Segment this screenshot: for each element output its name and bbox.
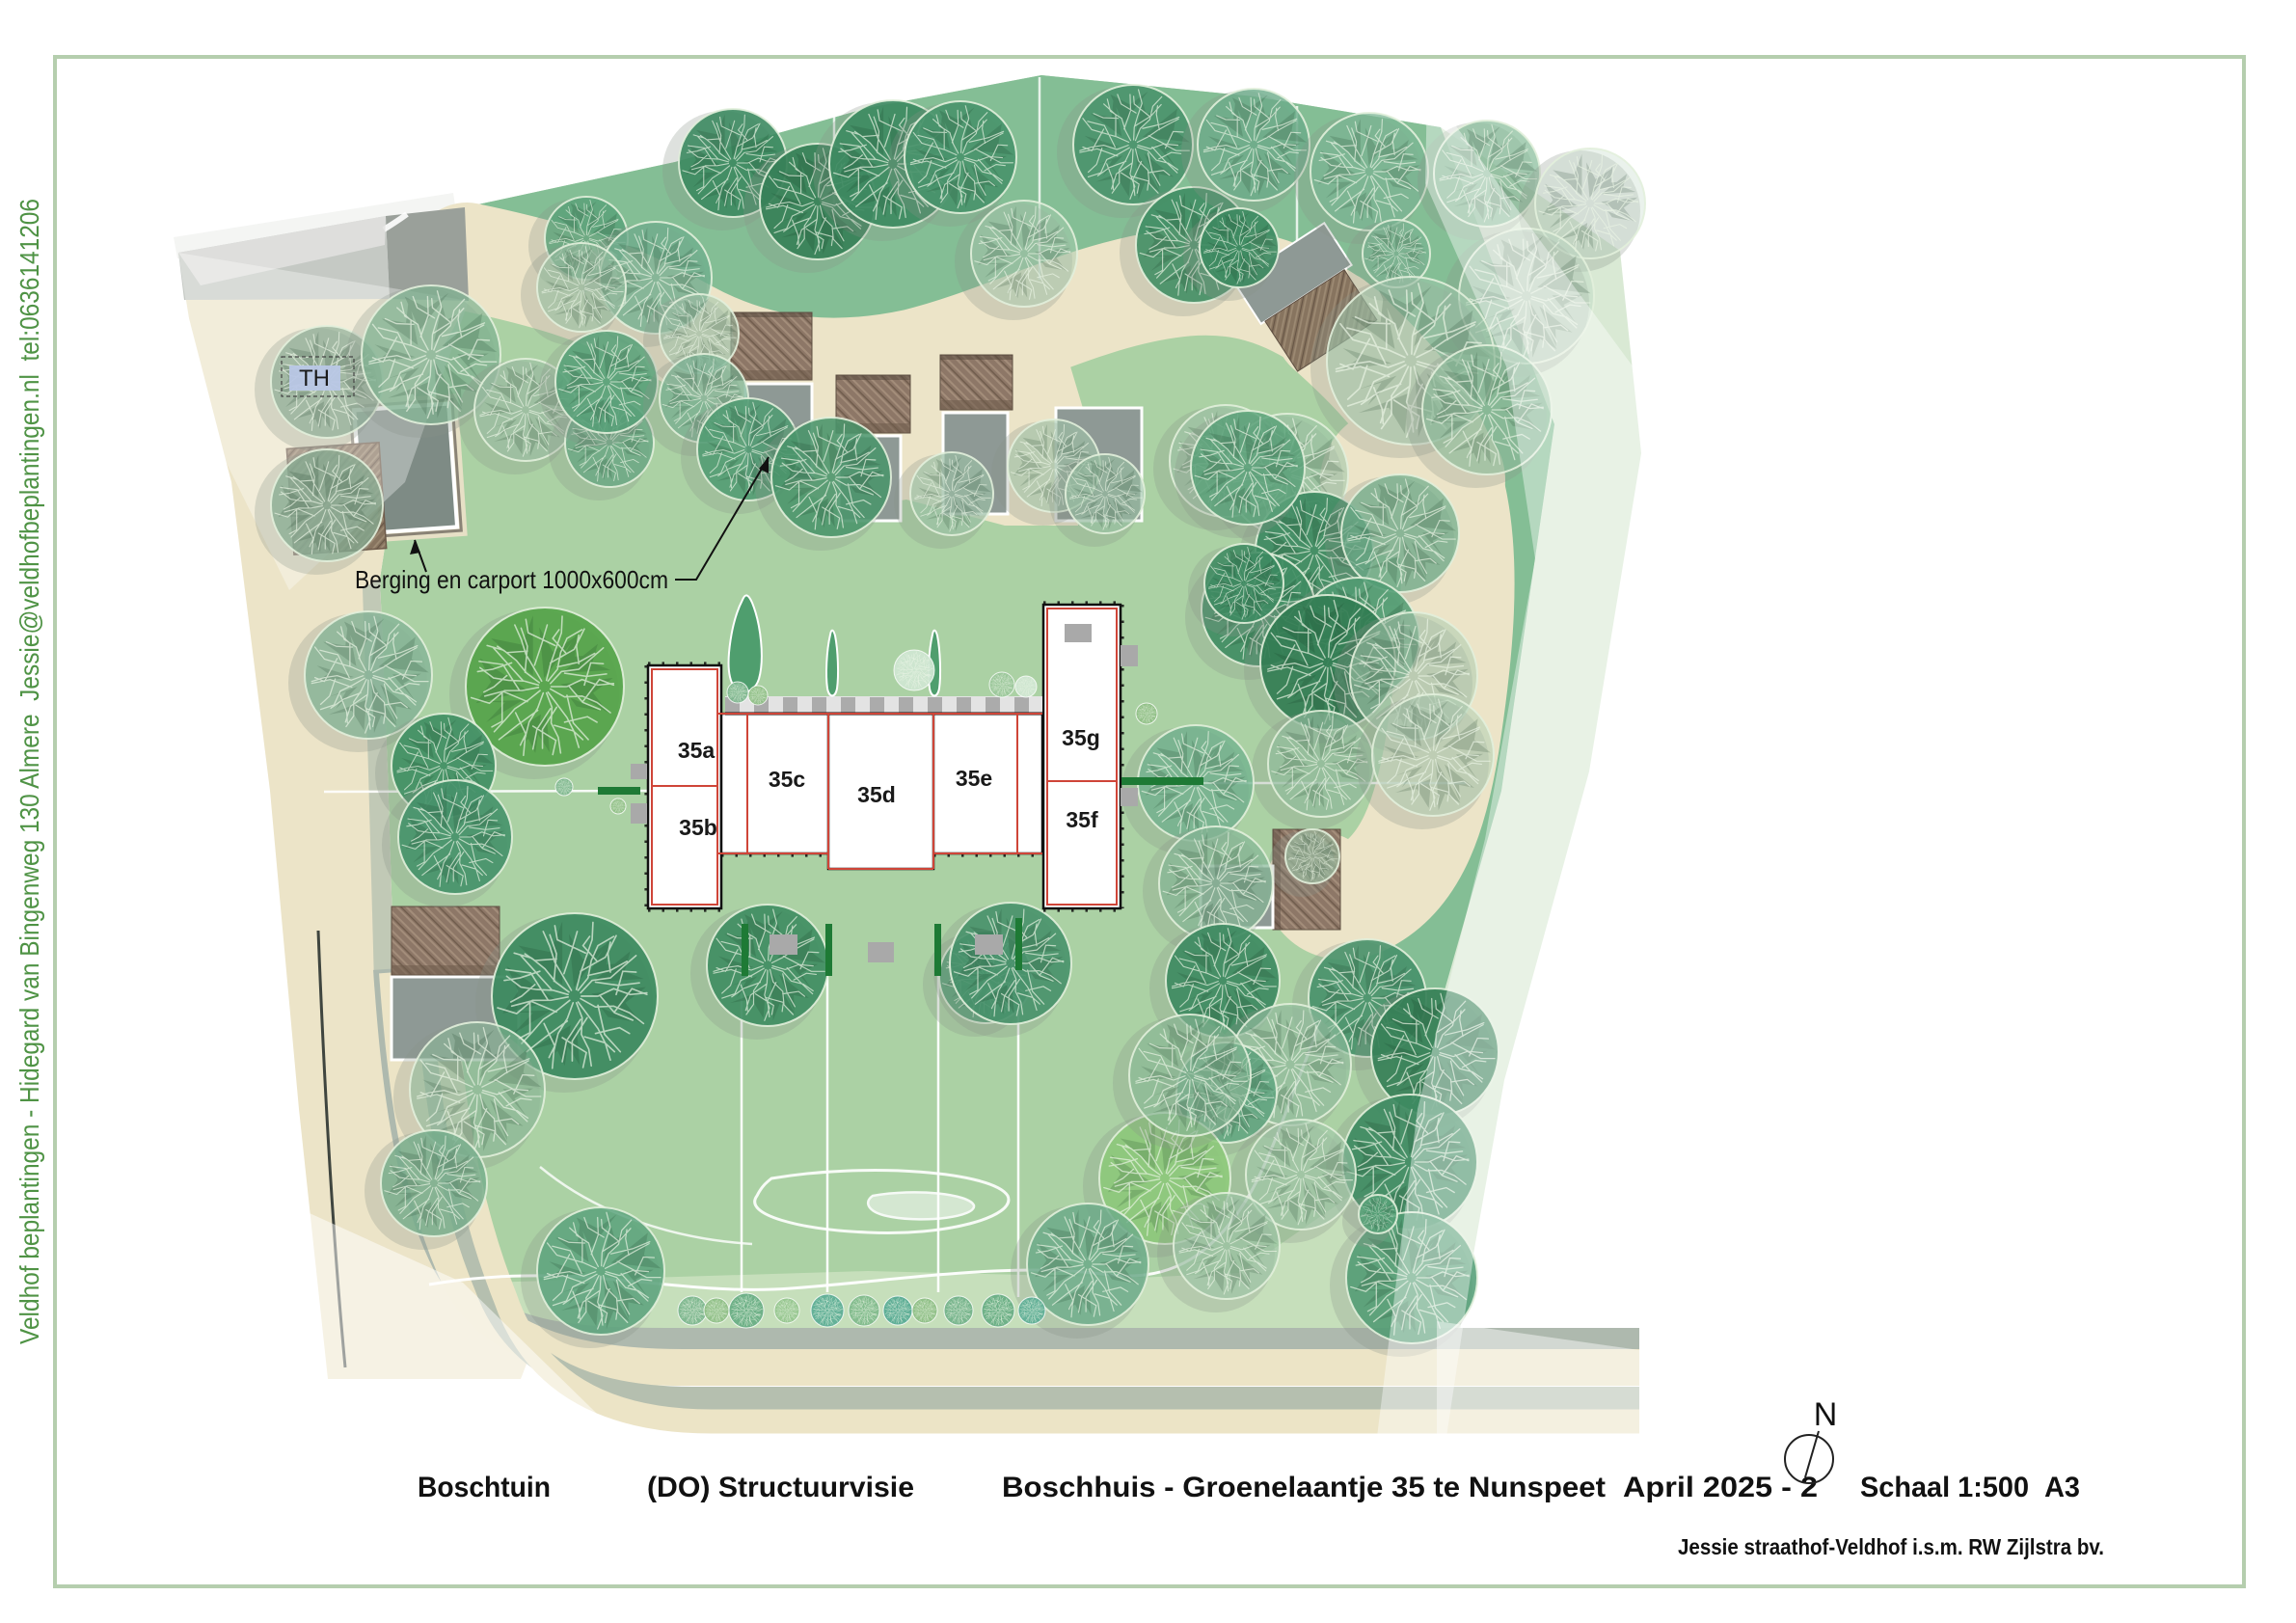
svg-text:April 2025 - 2: April 2025 - 2 (1623, 1472, 1818, 1503)
svg-text:35d: 35d (857, 782, 896, 807)
svg-text:35c: 35c (769, 767, 806, 792)
svg-text:35b: 35b (679, 815, 717, 840)
svg-text:35a: 35a (678, 738, 716, 763)
svg-text:(DO) Structuurvisie: (DO) Structuurvisie (647, 1472, 914, 1503)
svg-text:N: N (1814, 1396, 1838, 1433)
svg-text:Boschtuin: Boschtuin (418, 1472, 551, 1503)
svg-text:35g: 35g (1062, 725, 1100, 750)
svg-text:TH: TH (299, 365, 330, 392)
svg-text:35e: 35e (956, 766, 992, 791)
svg-text:35f: 35f (1066, 807, 1098, 832)
svg-text:Boschhuis - Groenelaantje 35 t: Boschhuis - Groenelaantje 35 te Nunspeet (1002, 1472, 1606, 1503)
svg-text:Jessie straathof-Veldhof i.s.m: Jessie straathof-Veldhof i.s.m. RW Zijls… (1678, 1534, 2104, 1559)
svg-text:Schaal 1:500 A3: Schaal 1:500 A3 (1860, 1472, 2080, 1503)
svg-text:Berging en carport 1000x600cm: Berging en carport 1000x600cm (355, 565, 668, 594)
svg-text:Veldhof beplantingen - Hidegar: Veldhof beplantingen - Hidegard van Bing… (14, 199, 44, 1344)
